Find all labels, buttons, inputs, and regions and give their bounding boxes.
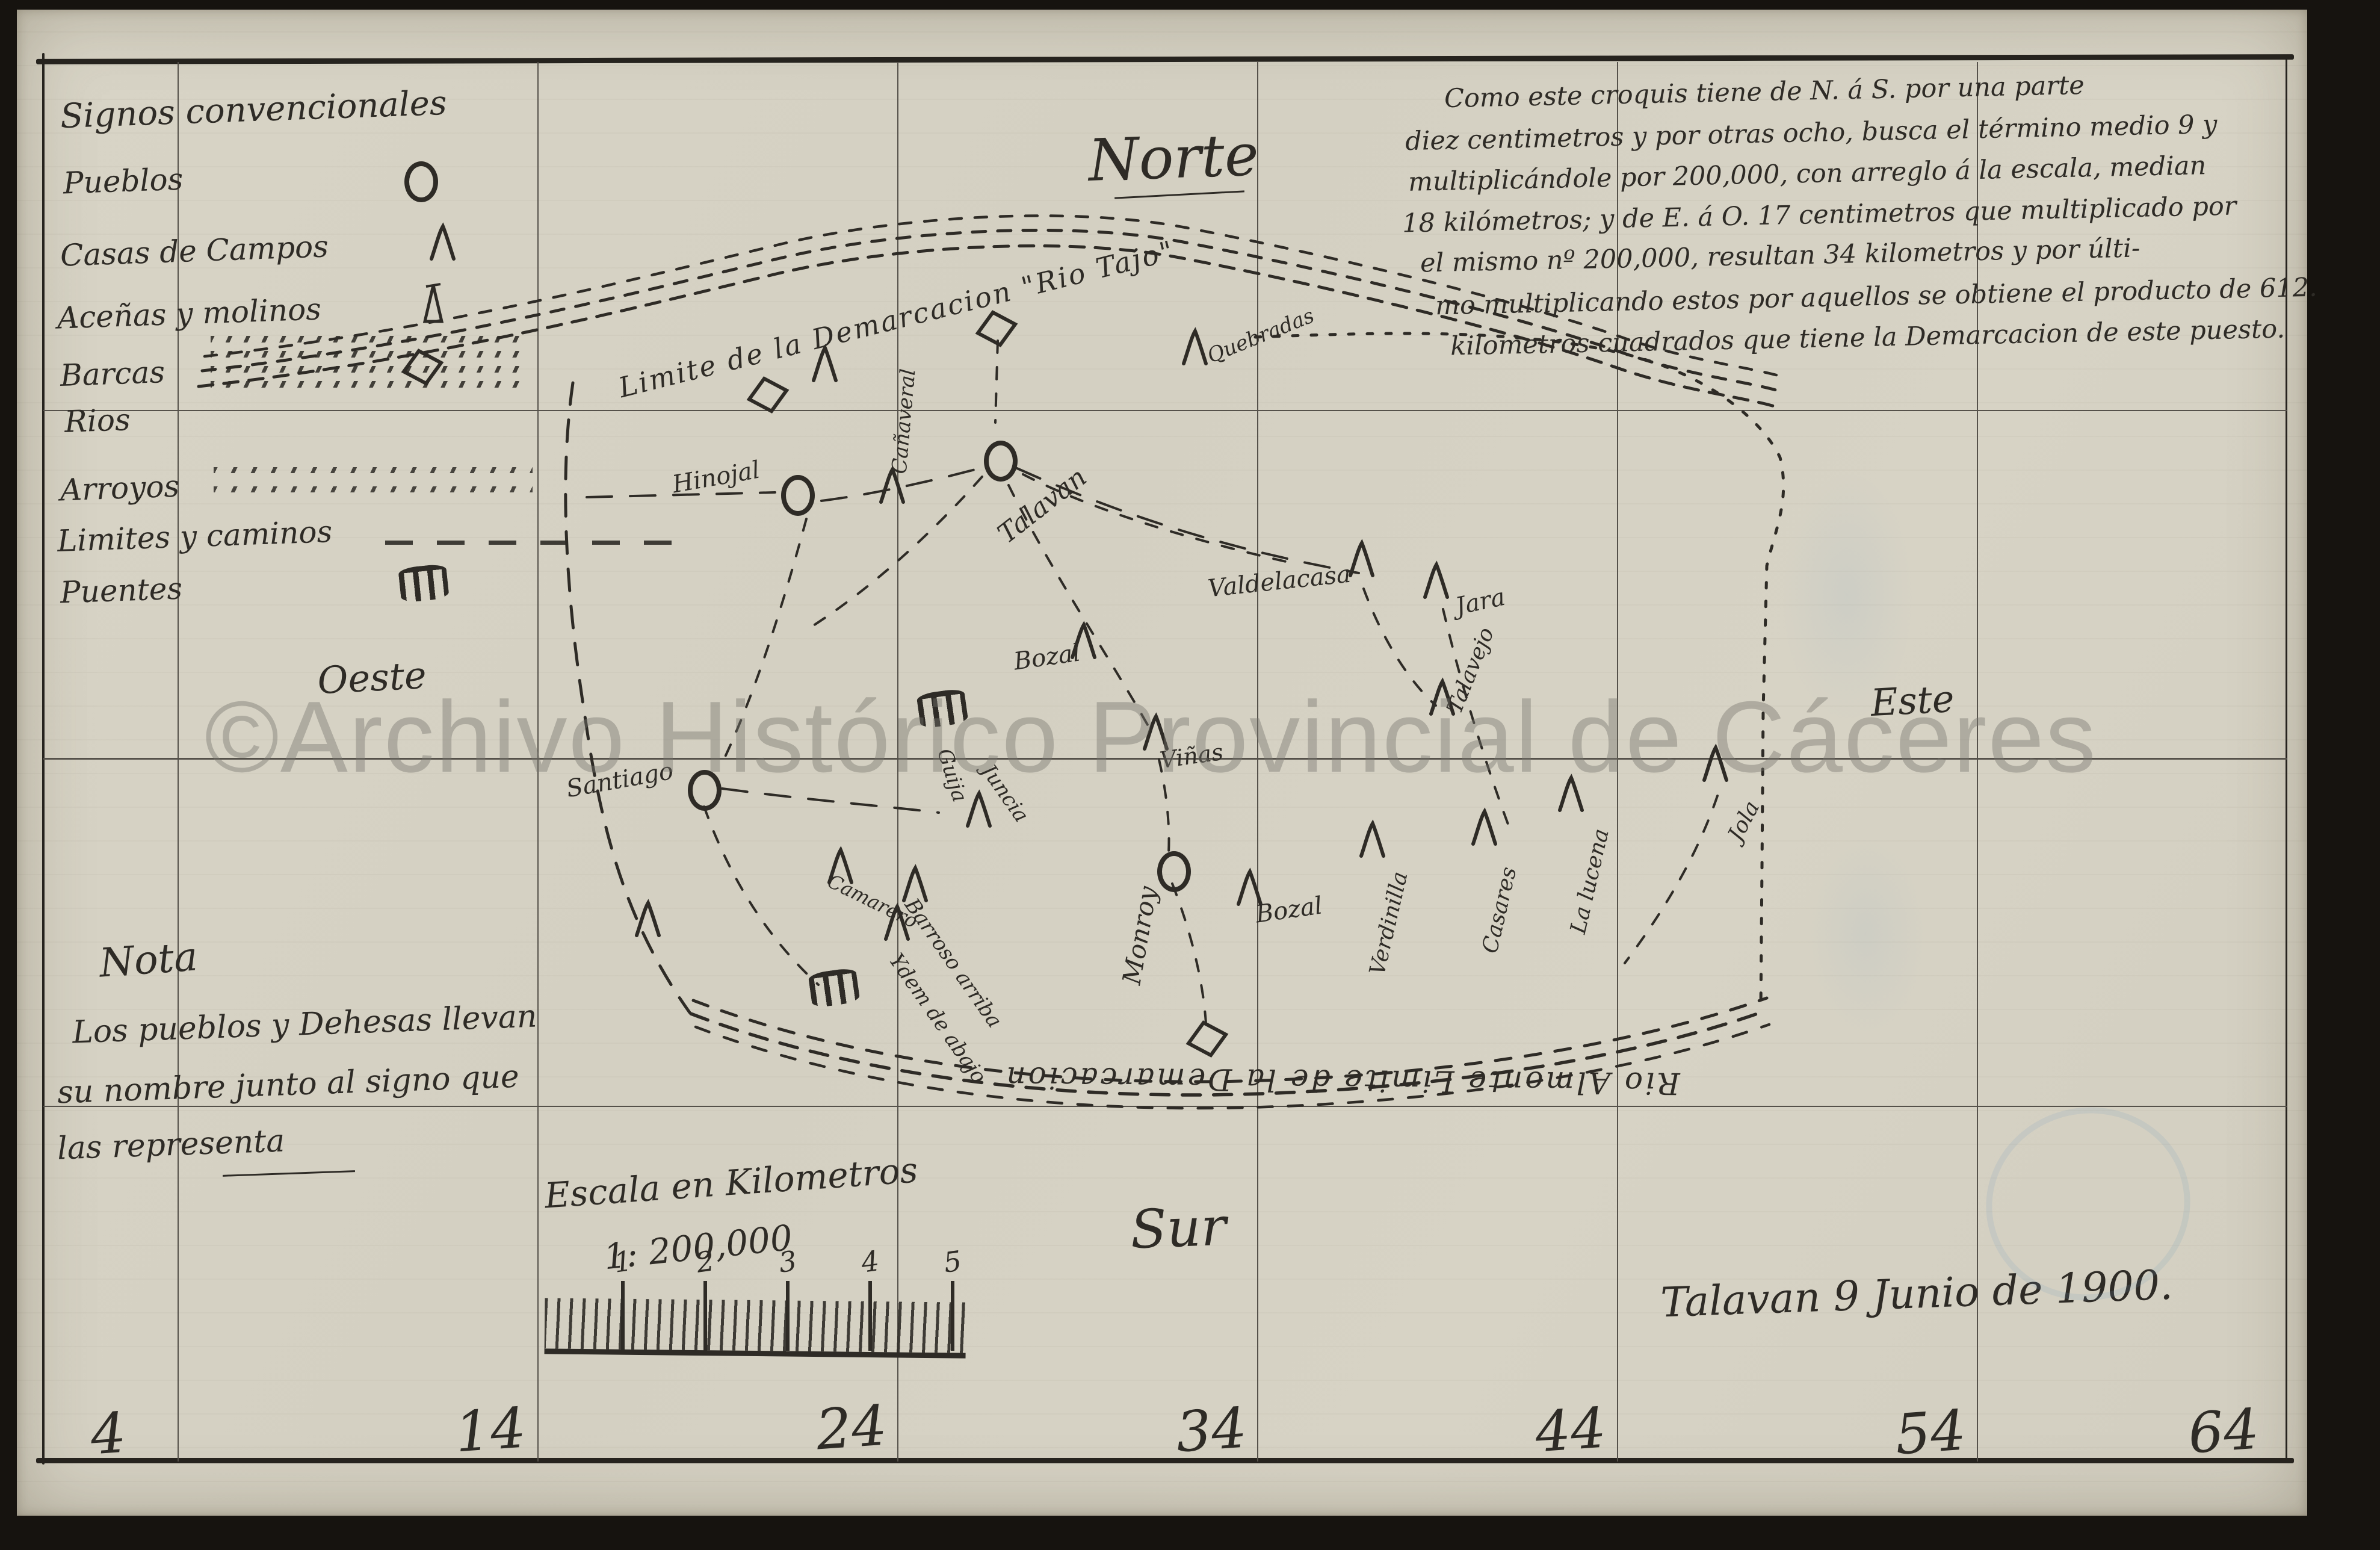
casa-marker (634, 901, 661, 938)
rio-dashes-symbol (211, 336, 524, 396)
scale-major-tick (703, 1281, 707, 1351)
archive-watermark: ©Archivo Histórico Provincial de Cáceres (205, 679, 2097, 795)
scale-bar (545, 1298, 966, 1358)
legend-item-rios: Rios (64, 402, 131, 439)
compass-south: Sur (1130, 1195, 1228, 1260)
acena-symbol (421, 282, 445, 324)
legend-item-puentes: Puentes (60, 571, 183, 610)
legend-item-pueblos: Pueblos (63, 162, 184, 201)
sheet-number: 4 (88, 1401, 128, 1468)
sheet-number: 44 (1533, 1396, 1608, 1465)
scale-major-tick (786, 1281, 790, 1351)
sheet-number: 14 (453, 1396, 528, 1465)
pueblo-marker-hinojal (781, 475, 815, 516)
puente-symbol (398, 563, 450, 603)
scale-major-tick (868, 1281, 872, 1351)
sheet-number: 34 (1174, 1396, 1249, 1465)
casa-marker-jara (1422, 562, 1450, 600)
rio-almonte-label: Rio Almonte Limite de la Demarcacion (1004, 1060, 1680, 1101)
limite-dashes-symbol (385, 541, 686, 545)
pueblo-symbol (404, 161, 438, 202)
scanned-map-document: { "colors": {"paper":"#d6d2c4","ink":"#2… (0, 0, 2380, 1550)
compass-north: Norte (1087, 121, 1260, 194)
legend-item-arroyos: Arroyos (60, 469, 180, 508)
casa-marker-valdelacasa (1347, 541, 1375, 578)
scale-major-tick (621, 1281, 625, 1351)
sheet-number: 54 (1893, 1398, 1968, 1468)
pueblo-marker-talavan (984, 441, 1018, 482)
sheet-number: 64 (2186, 1397, 2261, 1466)
legend-item-barcas: Barcas (60, 355, 165, 393)
sheet-number: 24 (814, 1393, 889, 1463)
nota-title: Nota (98, 933, 199, 986)
casa-marker-verdinilla (1358, 821, 1386, 858)
scale-major-tick (951, 1281, 954, 1351)
casa-marker (811, 346, 838, 383)
casa-symbol (428, 224, 456, 261)
pueblo-marker-monroy (1157, 851, 1191, 892)
arroyo-dashes-symbol (214, 467, 533, 506)
casa-marker-casares (1470, 809, 1498, 846)
casa-marker-ydem-de-abajo (883, 904, 910, 941)
